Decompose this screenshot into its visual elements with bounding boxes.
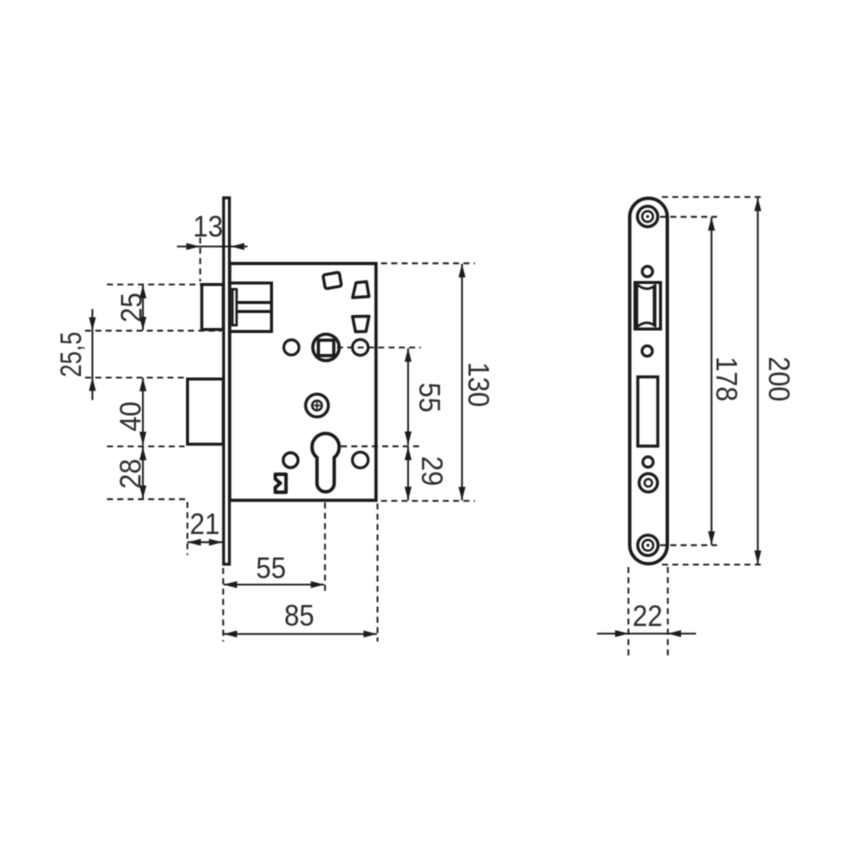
svg-text:29: 29 <box>415 456 449 486</box>
svg-text:22: 22 <box>632 600 662 634</box>
svg-text:13: 13 <box>193 210 223 244</box>
svg-text:55: 55 <box>256 552 286 586</box>
svg-text:130: 130 <box>461 362 495 407</box>
svg-text:28: 28 <box>114 459 148 489</box>
svg-text:25: 25 <box>115 293 149 323</box>
svg-text:40: 40 <box>114 401 148 431</box>
svg-text:200: 200 <box>762 356 796 401</box>
svg-text:55: 55 <box>412 382 446 412</box>
svg-text:25,5: 25,5 <box>54 332 87 378</box>
svg-text:21: 21 <box>190 508 220 542</box>
svg-text:178: 178 <box>709 356 743 401</box>
svg-text:85: 85 <box>284 599 314 633</box>
